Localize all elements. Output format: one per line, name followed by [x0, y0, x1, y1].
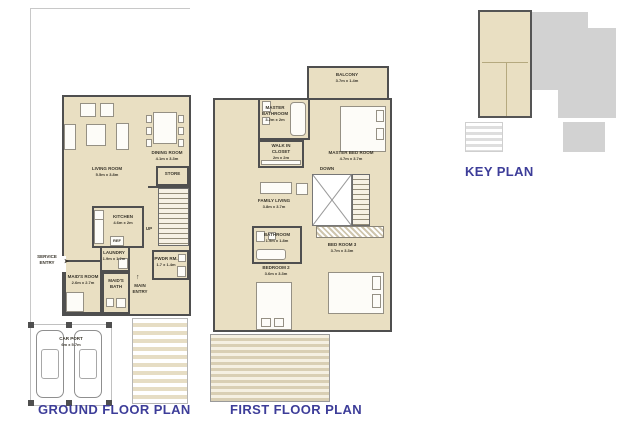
armchair — [296, 183, 308, 195]
down-label: DOWN — [316, 166, 338, 172]
dining-table — [153, 112, 177, 144]
keyplan-carport — [465, 122, 503, 152]
dining-chair — [178, 115, 184, 123]
floor-plan-sheet: LIVING ROOM 5.5m x 3.8m DINING ROOM 4.1m… — [0, 0, 640, 431]
side-yard-steps — [132, 318, 188, 404]
dining-chair — [146, 139, 152, 147]
bathtub — [256, 249, 286, 260]
keyplan-block — [532, 12, 588, 28]
car-port-post — [28, 322, 34, 328]
coffee-table — [86, 124, 106, 146]
maids-bath-label: MAID'S BATH — [104, 278, 128, 290]
keyplan-block — [558, 90, 616, 118]
key-plan-title: KEY PLAN — [465, 164, 534, 179]
up-label: UP — [142, 226, 156, 232]
kitchen-sink — [94, 210, 104, 220]
terrace-pergola — [210, 334, 330, 402]
pillow — [376, 110, 384, 122]
pillow — [274, 318, 284, 327]
kitchen-label: KITCHEN 4.6m x 2m — [104, 214, 142, 225]
bathroom-label: BATHROOM 1.9m x 1.8m — [257, 232, 297, 243]
stairs-down — [352, 174, 370, 226]
car-port-post — [28, 400, 34, 406]
main-entry-arrow-icon: ↑ — [136, 274, 140, 281]
pillow — [372, 294, 381, 308]
car-cabin — [79, 349, 97, 379]
service-entry-label: SERVICE ENTRY — [32, 254, 62, 266]
toilet — [177, 266, 186, 277]
main-entry-label: MAIN ENTRY — [128, 283, 152, 295]
walk-in-closet-label: WALK IN CLOSET 2m x 2m — [262, 143, 300, 160]
master-bathroom-label: MASTER BATHROOM 3.2m x 2m — [260, 105, 290, 122]
dining-chair — [146, 127, 152, 135]
bedroom-2-label: BEDROOM 2 3.6m x 3.3m — [254, 265, 298, 276]
family-living-label: FAMILY LIVING 3.8m x 3.7m — [250, 198, 298, 209]
maids-room-label: MAID'S ROOM 2.6m x 2.7m — [66, 274, 100, 285]
service-entry-arrow-icon: ➤ — [64, 258, 69, 265]
powder-room-label: PWDR RM. 1.7 x 1.4m — [153, 256, 179, 267]
pillow — [376, 128, 384, 140]
pillow — [372, 276, 381, 290]
car-port-post — [106, 322, 112, 328]
stair-void — [312, 174, 352, 226]
master-bedroom-label: MASTER BED ROOM 4.7m x 3.7m — [322, 150, 380, 161]
car-cabin — [41, 349, 59, 379]
bedroom-3-label: BED ROOM 3 3.7m x 3.3m — [318, 242, 366, 253]
keyplan-block — [532, 28, 616, 90]
shower — [116, 298, 126, 308]
stairs-up — [158, 188, 189, 246]
armchair — [100, 103, 114, 117]
plot-boundary-top — [30, 8, 190, 9]
wardrobe — [316, 226, 384, 238]
armchair — [80, 103, 96, 117]
keyplan-wall-line — [482, 62, 528, 63]
toilet — [106, 298, 114, 307]
dining-chair — [178, 127, 184, 135]
store-label: STORE — [158, 171, 187, 177]
keyplan-wall-line — [506, 62, 507, 116]
tv-cabinet — [116, 123, 129, 150]
bathtub — [290, 102, 306, 136]
living-room-label: LIVING ROOM 5.5m x 3.8m — [84, 166, 130, 177]
laundry-label: LAUNDRY 1.9m x 1.2m — [100, 250, 128, 261]
dining-chair — [178, 139, 184, 147]
ground-floor-title: GROUND FLOOR PLAN — [38, 402, 191, 417]
wall-segment — [148, 186, 191, 188]
closet-shelves — [261, 160, 301, 165]
balcony-label: BALCONY 3.7m x 1.4m — [317, 72, 377, 83]
sofa — [260, 182, 292, 194]
sink — [178, 254, 186, 262]
sofa — [64, 124, 76, 150]
keyplan-terrace — [563, 122, 605, 152]
plot-boundary-left — [30, 8, 31, 330]
car-port-post — [66, 322, 72, 328]
first-floor-title: FIRST FLOOR PLAN — [230, 402, 362, 417]
dining-room-label: DINING ROOM 4.1m x 3.3m — [144, 150, 190, 161]
keyplan-unit-highlight — [478, 10, 532, 118]
ref-label: REF — [110, 238, 124, 243]
dining-chair — [146, 115, 152, 123]
pillow — [261, 318, 271, 327]
maids-bed — [66, 292, 84, 312]
car-port-label: CAR PORT 6m x 5.7m — [51, 336, 91, 347]
